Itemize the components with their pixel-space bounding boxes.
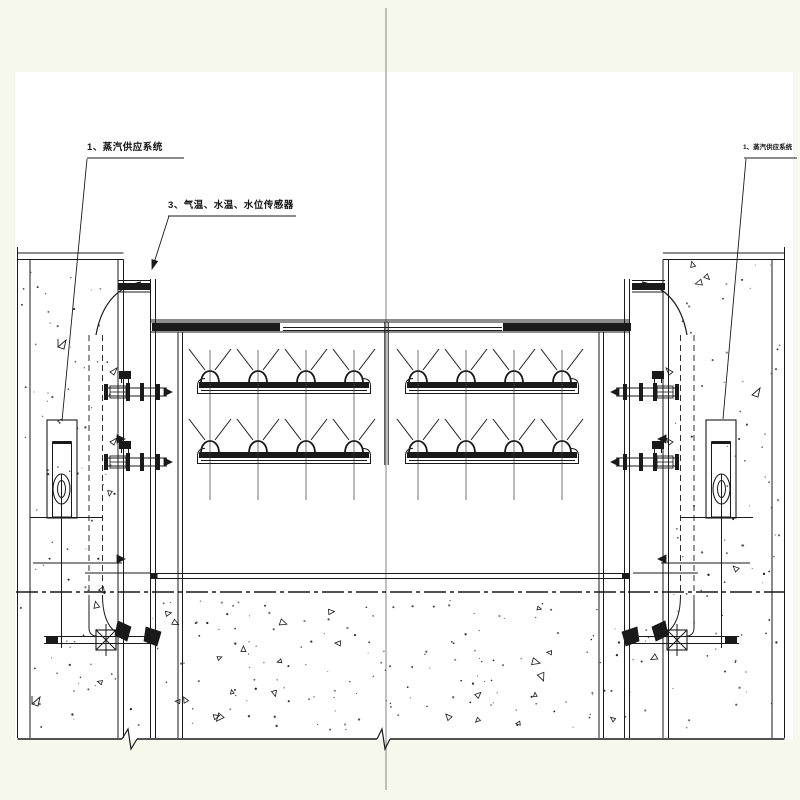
- label-steam-supply-right: 1、蒸汽供应系统: [743, 145, 792, 152]
- label-steam-supply-left: 1、蒸汽供应系统: [87, 143, 163, 153]
- drawing-sheet: 1、蒸汽供应系统 3、气温、水温、水位传感器 1、蒸汽供应系统: [0, 0, 800, 800]
- engineering-drawing: [0, 0, 800, 800]
- paper-background: [0, 0, 800, 800]
- label-temperature-water-level-sensors: 3、气温、水温、水位传感器: [168, 201, 294, 211]
